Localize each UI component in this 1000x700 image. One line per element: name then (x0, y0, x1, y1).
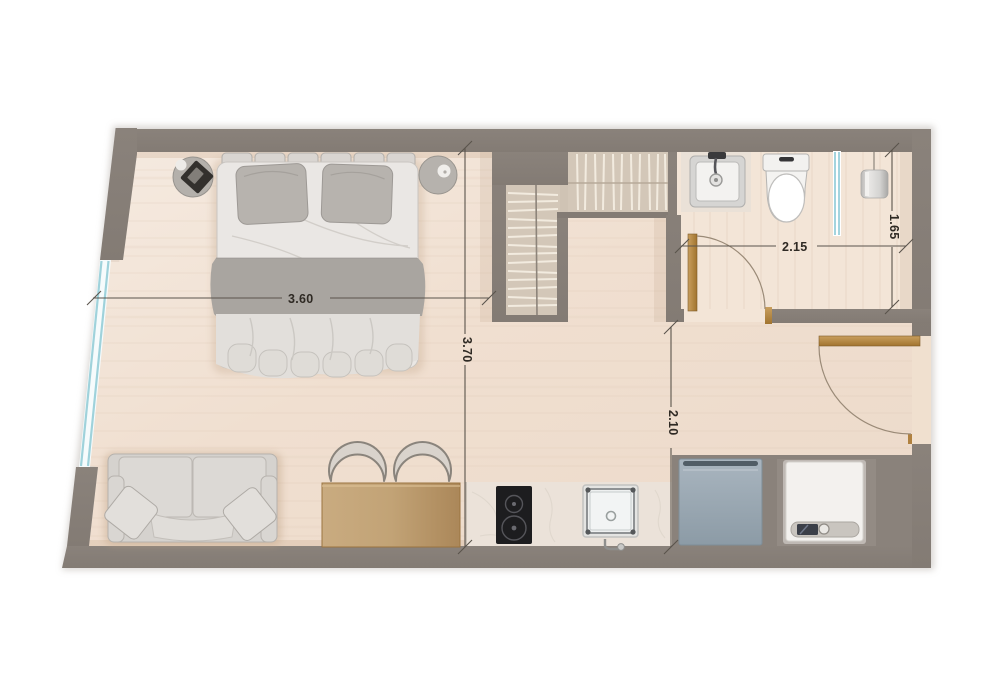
svg-text:2.15: 2.15 (782, 240, 808, 254)
svg-text:1.65: 1.65 (887, 214, 901, 240)
svg-text:3.70: 3.70 (460, 337, 474, 363)
svg-text:3.60: 3.60 (288, 292, 314, 306)
svg-text:2.10: 2.10 (666, 410, 680, 436)
